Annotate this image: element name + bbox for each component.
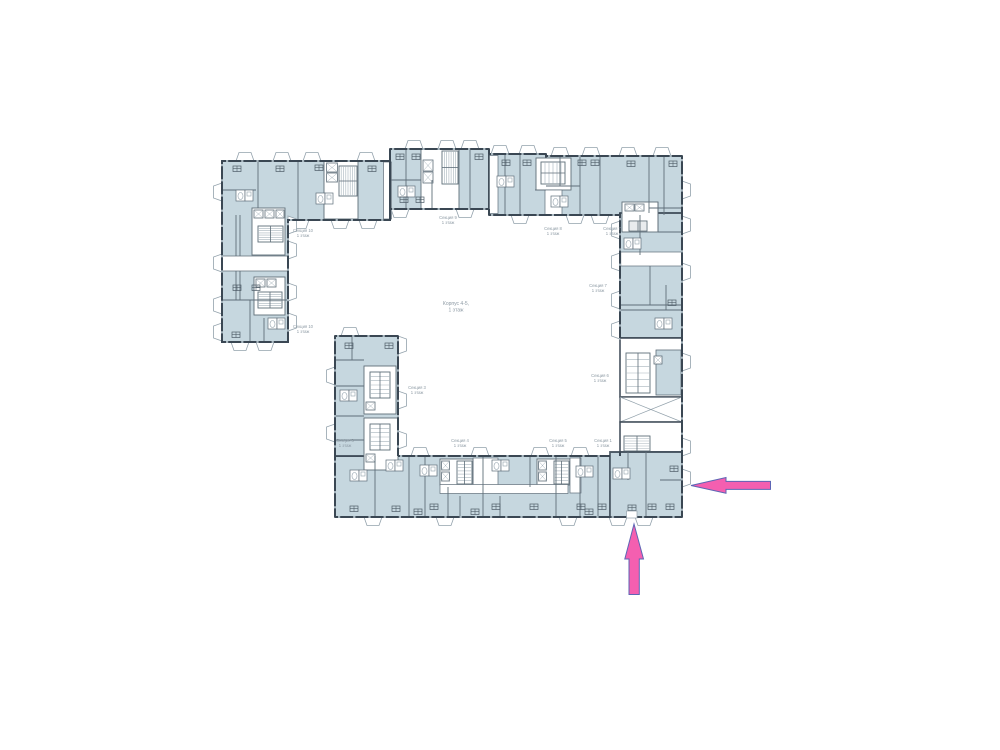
svg-text:1 этаж: 1 этаж [606, 231, 619, 236]
svg-text:1 этаж: 1 этаж [454, 443, 467, 448]
svg-text:1 этаж: 1 этаж [552, 443, 565, 448]
svg-text:1 этаж: 1 этаж [547, 231, 560, 236]
svg-text:1 этаж: 1 этаж [592, 288, 605, 293]
svg-text:1 этаж: 1 этаж [449, 308, 465, 314]
svg-text:1 этаж: 1 этаж [594, 378, 607, 383]
svg-text:1 этаж: 1 этаж [597, 443, 610, 448]
svg-text:Корпус 4-5,: Корпус 4-5, [443, 301, 469, 307]
svg-text:1 этаж: 1 этаж [297, 329, 310, 334]
svg-text:1 этаж: 1 этаж [442, 220, 455, 225]
svg-text:1 этаж: 1 этаж [297, 233, 310, 238]
svg-text:1 этаж: 1 этаж [339, 443, 352, 448]
svg-text:1 этаж: 1 этаж [411, 390, 424, 395]
